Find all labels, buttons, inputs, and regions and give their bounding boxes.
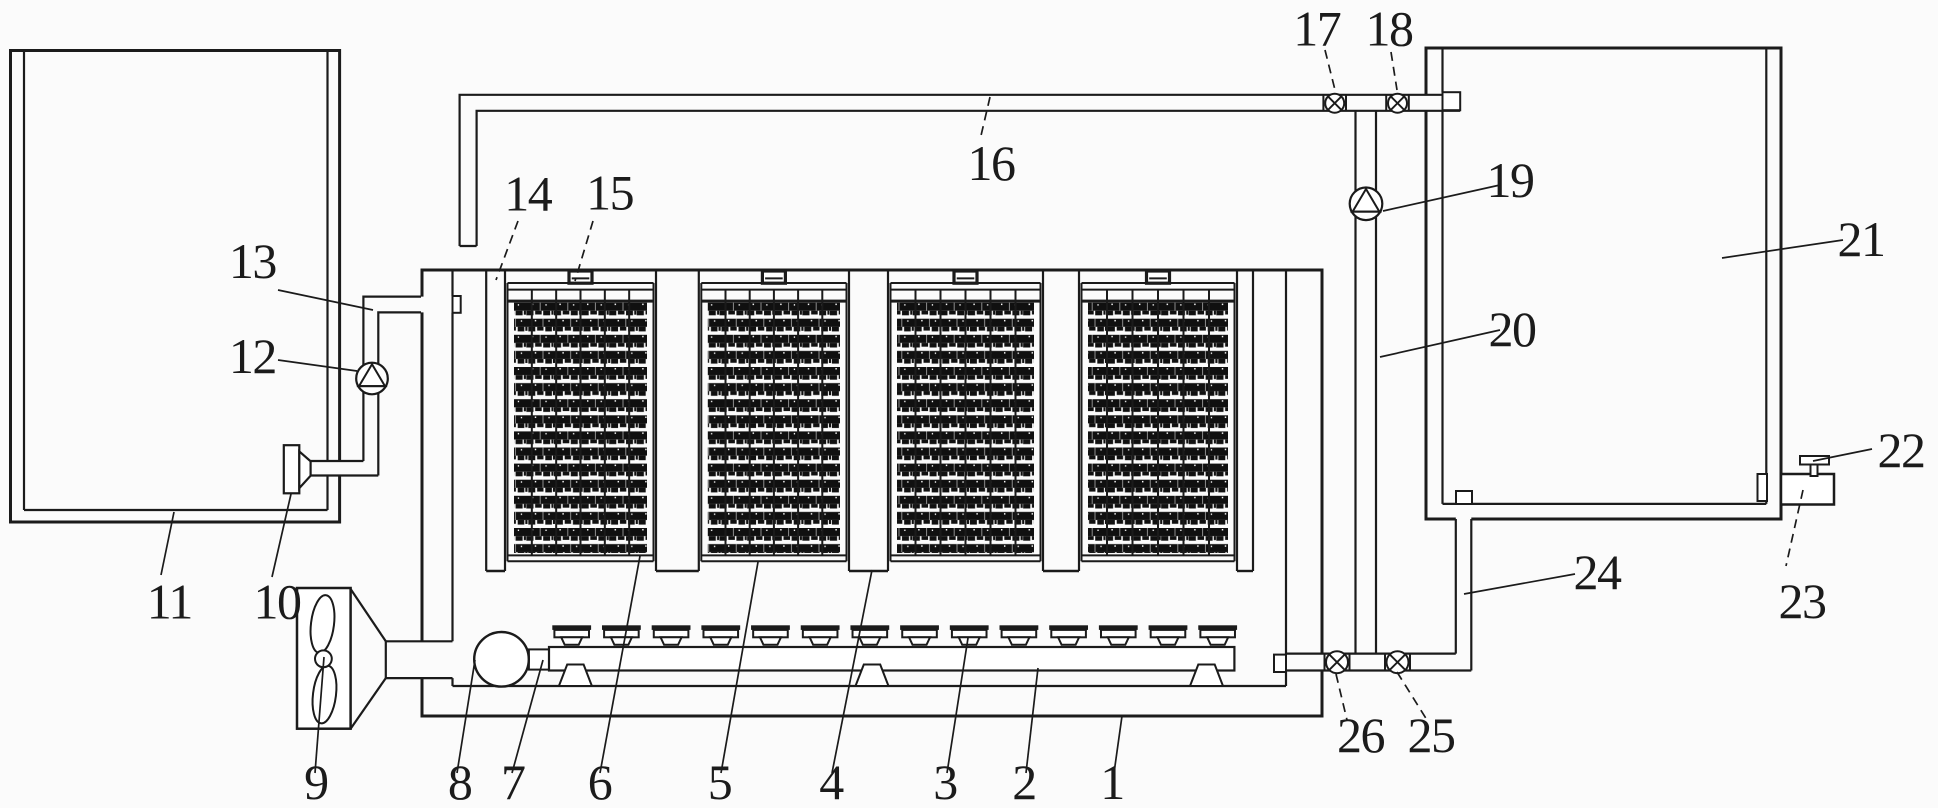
svg-text:16: 16: [968, 135, 1016, 191]
svg-text:9: 9: [304, 754, 328, 808]
svg-text:23: 23: [1779, 573, 1827, 629]
svg-text:1: 1: [1100, 754, 1124, 808]
svg-text:25: 25: [1408, 707, 1456, 763]
svg-text:5: 5: [708, 754, 732, 808]
svg-text:18: 18: [1366, 0, 1414, 56]
svg-text:26: 26: [1337, 707, 1385, 763]
svg-text:13: 13: [229, 233, 277, 289]
svg-text:2: 2: [1012, 754, 1036, 808]
svg-text:21: 21: [1838, 211, 1885, 267]
svg-text:8: 8: [448, 754, 472, 808]
svg-text:19: 19: [1487, 152, 1534, 208]
svg-text:4: 4: [819, 754, 844, 808]
svg-text:20: 20: [1489, 301, 1537, 357]
svg-text:6: 6: [588, 754, 612, 808]
svg-text:11: 11: [147, 574, 192, 630]
svg-text:22: 22: [1878, 422, 1925, 478]
svg-text:14: 14: [504, 165, 553, 221]
svg-text:24: 24: [1574, 544, 1623, 600]
svg-text:17: 17: [1293, 0, 1341, 56]
svg-text:15: 15: [586, 164, 634, 220]
svg-text:10: 10: [254, 574, 302, 630]
svg-text:3: 3: [933, 754, 957, 808]
svg-text:7: 7: [501, 754, 525, 808]
svg-text:12: 12: [229, 328, 276, 384]
